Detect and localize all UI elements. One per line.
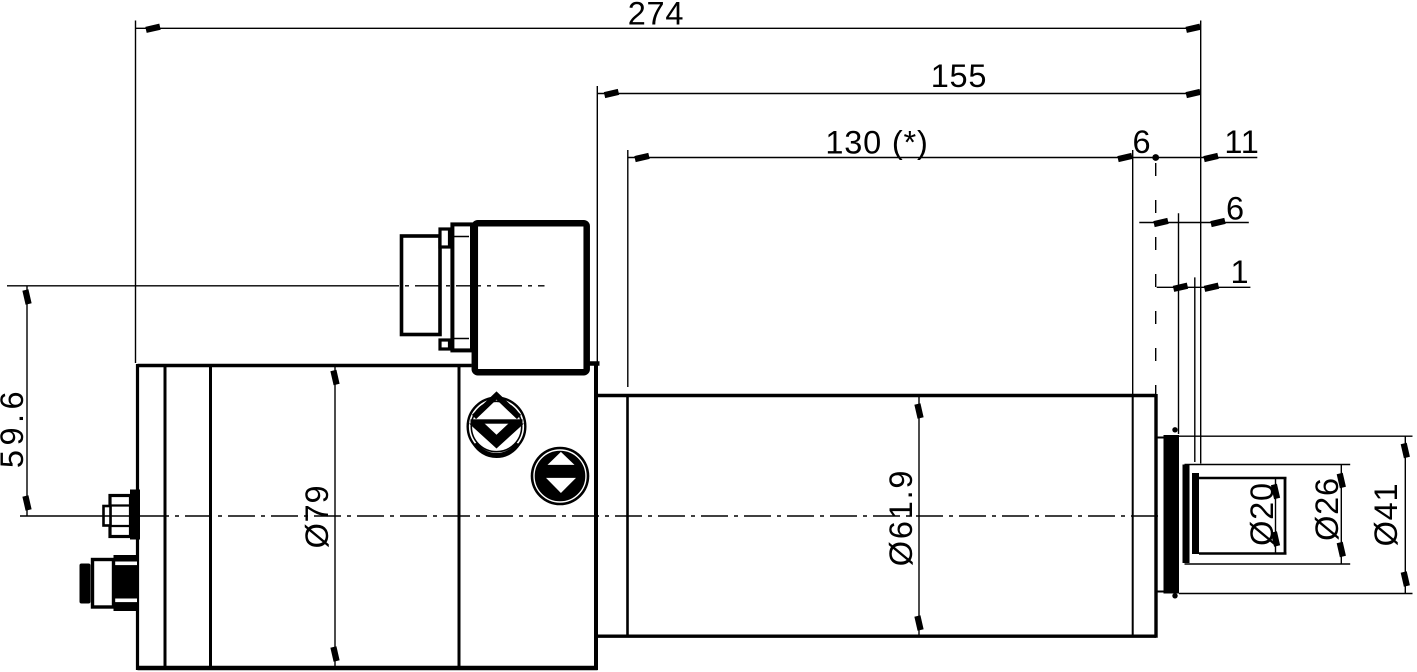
- svg-text:11: 11: [1224, 124, 1259, 160]
- svg-text:155: 155: [931, 58, 988, 94]
- svg-text:274: 274: [628, 0, 685, 32]
- svg-text:Ø26: Ø26: [1309, 477, 1345, 541]
- svg-text:1: 1: [1230, 254, 1248, 290]
- svg-text:6: 6: [1226, 191, 1244, 227]
- svg-text:130 (*): 130 (*): [825, 125, 928, 161]
- svg-text:Ø20: Ø20: [1244, 482, 1280, 546]
- svg-text:59.6: 59.6: [0, 387, 30, 468]
- svg-text:6: 6: [1132, 124, 1150, 160]
- svg-text:Ø61.9: Ø61.9: [883, 469, 919, 567]
- svg-text:Ø41: Ø41: [1368, 483, 1404, 547]
- svg-text:Ø79: Ø79: [299, 485, 335, 549]
